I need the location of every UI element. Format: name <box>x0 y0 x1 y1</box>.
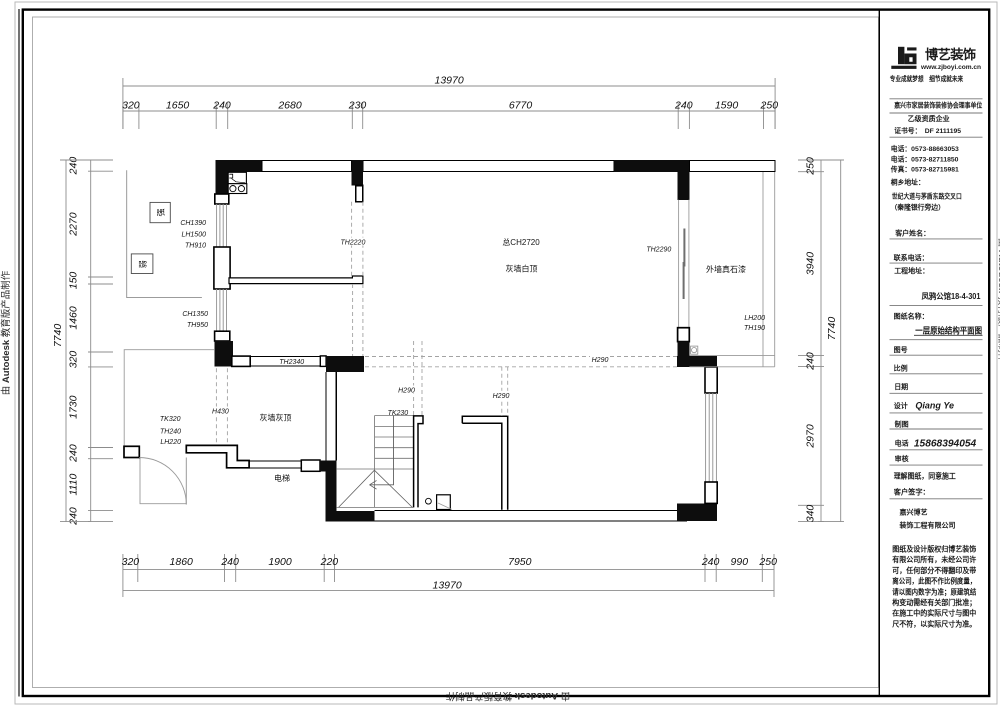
svg-text:250: 250 <box>805 157 817 176</box>
svg-text:构变动需经有关部门批准；: 构变动需经有关部门批准； <box>892 598 976 607</box>
svg-text:240: 240 <box>212 100 231 112</box>
svg-text:TH240: TH240 <box>160 429 181 436</box>
svg-text:2680: 2680 <box>277 100 302 112</box>
svg-text:Qiang Ye: Qiang Ye <box>915 400 954 410</box>
svg-text:客户姓名：: 客户姓名： <box>894 229 930 238</box>
svg-text:TK230: TK230 <box>388 410 409 417</box>
svg-text:240: 240 <box>68 444 80 463</box>
svg-text:240: 240 <box>701 556 720 568</box>
svg-text:凤鸦公馆18-4-301: 凤鸦公馆18-4-301 <box>922 291 982 301</box>
svg-text:6770: 6770 <box>509 100 533 112</box>
svg-text:2970: 2970 <box>805 424 817 449</box>
svg-text:H290: H290 <box>592 357 609 364</box>
svg-text:220: 220 <box>320 556 339 568</box>
svg-text:嘉兴市家居装饰装修协会理事单位: 嘉兴市家居装饰装修协会理事单位 <box>893 100 982 109</box>
svg-text:320: 320 <box>122 100 140 112</box>
svg-text:320: 320 <box>68 351 80 369</box>
svg-text:图纸名称：: 图纸名称： <box>894 312 929 321</box>
svg-text:外墙真石漆: 外墙真石漆 <box>706 264 746 274</box>
svg-text:2270: 2270 <box>68 212 80 237</box>
svg-text:7740: 7740 <box>826 317 838 341</box>
svg-text:设计: 设计 <box>894 401 908 410</box>
svg-text:工程地址：: 工程地址： <box>894 266 929 275</box>
svg-text:传真：0573-82715981: 传真：0573-82715981 <box>890 165 959 174</box>
svg-text:尺不符，以实际尺寸为准。: 尺不符，以实际尺寸为准。 <box>892 619 976 628</box>
svg-text:一层原始结构平面图: 一层原始结构平面图 <box>915 324 982 335</box>
svg-text:联系电话：: 联系电话： <box>894 253 929 262</box>
svg-text:150: 150 <box>68 272 80 290</box>
svg-text:专业成就梦想 细节成就未来: 专业成就梦想 细节成就未来 <box>890 74 964 83</box>
svg-text:www.zjboyi.com.cn: www.zjboyi.com.cn <box>920 64 981 71</box>
svg-text:由 Autodesk 教育版产品制作: 由 Autodesk 教育版产品制作 <box>445 690 570 702</box>
svg-text:电话: 电话 <box>895 438 909 447</box>
svg-text:TH2340: TH2340 <box>279 359 304 366</box>
svg-text:1730: 1730 <box>68 395 80 419</box>
svg-text:总CH2720: 总CH2720 <box>502 237 540 247</box>
svg-text:240: 240 <box>805 352 817 371</box>
svg-text:250: 250 <box>758 556 777 568</box>
svg-text:比例: 比例 <box>894 364 908 373</box>
svg-text:由 Autodesk 教育版产品制作: 由 Autodesk 教育版产品制作 <box>996 238 1000 363</box>
svg-text:由 Autodesk 教育版产品制作: 由 Autodesk 教育版产品制作 <box>437 12 562 24</box>
svg-text:1650: 1650 <box>166 100 190 112</box>
svg-text:灰墙灰顶: 灰墙灰顶 <box>260 412 292 422</box>
svg-text:1900: 1900 <box>268 556 292 568</box>
svg-text:审核: 审核 <box>895 454 909 463</box>
svg-text:240: 240 <box>220 556 239 568</box>
svg-text:在施工中的实际尺寸与图中: 在施工中的实际尺寸与图中 <box>892 609 976 618</box>
svg-text:日期: 日期 <box>894 382 908 391</box>
svg-text:240: 240 <box>68 507 80 526</box>
svg-text:离公司，此图不作比例度量，: 离公司，此图不作比例度量， <box>892 577 976 586</box>
svg-text:H290: H290 <box>398 388 415 395</box>
svg-text:TH910: TH910 <box>185 243 206 250</box>
svg-text:TH2290: TH2290 <box>646 247 671 254</box>
svg-text:可，任何部分不得翻印及带: 可，任何部分不得翻印及带 <box>892 566 976 575</box>
svg-text:TH2220: TH2220 <box>340 240 365 247</box>
svg-text:340: 340 <box>805 505 817 523</box>
svg-text:请以图内数字为准；原建筑结: 请以图内数字为准；原建筑结 <box>892 587 976 596</box>
svg-text:LH1500: LH1500 <box>181 232 206 239</box>
svg-text:13970: 13970 <box>433 580 462 592</box>
svg-text:230: 230 <box>348 100 367 112</box>
svg-text:240: 240 <box>674 100 693 112</box>
svg-text:制图: 制图 <box>895 420 909 429</box>
svg-text:图号: 图号 <box>894 345 908 354</box>
svg-text:世纪大道与茅盾东路交叉口: 世纪大道与茅盾东路交叉口 <box>892 191 962 200</box>
svg-text:有限公司所有，未经公司许: 有限公司所有，未经公司许 <box>892 555 977 564</box>
svg-text:1460: 1460 <box>68 306 80 330</box>
svg-text:3940: 3940 <box>805 252 817 276</box>
svg-text:TH190: TH190 <box>744 325 765 332</box>
svg-text:TH950: TH950 <box>187 322 208 329</box>
svg-text:桐乡地址：: 桐乡地址： <box>891 178 925 187</box>
svg-text:（秦隆银行旁边）: （秦隆银行旁边） <box>891 202 945 211</box>
svg-text:电话：0573-88663053: 电话：0573-88663053 <box>891 144 959 153</box>
svg-text:15868394054: 15868394054 <box>914 438 977 449</box>
svg-text:由 Autodesk 教育版产品制作: 由 Autodesk 教育版产品制作 <box>0 270 12 395</box>
svg-text:博艺装饰: 博艺装饰 <box>925 46 976 62</box>
svg-text:13970: 13970 <box>435 75 464 87</box>
svg-text:强: 强 <box>157 209 166 217</box>
svg-text:理解图纸，同意施工: 理解图纸，同意施工 <box>894 471 956 480</box>
svg-text:1860: 1860 <box>170 556 194 568</box>
svg-text:LH220: LH220 <box>160 439 181 446</box>
svg-text:250: 250 <box>760 100 779 112</box>
svg-text:7740: 7740 <box>52 324 64 348</box>
svg-text:客户签字：: 客户签字： <box>893 487 930 496</box>
svg-text:320: 320 <box>122 556 140 568</box>
svg-text:乙级资质企业: 乙级资质企业 <box>908 114 950 123</box>
svg-text:240: 240 <box>68 157 80 176</box>
svg-text:1590: 1590 <box>715 100 739 112</box>
svg-text:LH200: LH200 <box>744 315 765 322</box>
svg-text:TK320: TK320 <box>160 416 181 423</box>
svg-text:CH1390: CH1390 <box>180 220 206 227</box>
svg-text:CH1350: CH1350 <box>182 311 208 318</box>
svg-text:H290: H290 <box>493 393 510 400</box>
svg-text:灰墙白顶: 灰墙白顶 <box>506 263 538 273</box>
svg-text:990: 990 <box>731 556 749 568</box>
svg-text:7950: 7950 <box>508 556 532 568</box>
svg-text:嘉兴博艺: 嘉兴博艺 <box>899 508 928 517</box>
svg-text:电梯: 电梯 <box>274 473 290 483</box>
svg-text:1110: 1110 <box>68 474 80 496</box>
svg-text:图纸及设计版权归博艺装饰: 图纸及设计版权归博艺装饰 <box>892 545 976 554</box>
svg-text:弱: 弱 <box>138 260 147 268</box>
svg-text:H430: H430 <box>212 409 229 416</box>
svg-text:电话：0573-82711850: 电话：0573-82711850 <box>891 154 959 163</box>
svg-text:装饰工程有限公司: 装饰工程有限公司 <box>899 521 956 530</box>
svg-text:证书号： DF 2111195: 证书号： DF 2111195 <box>894 126 961 135</box>
